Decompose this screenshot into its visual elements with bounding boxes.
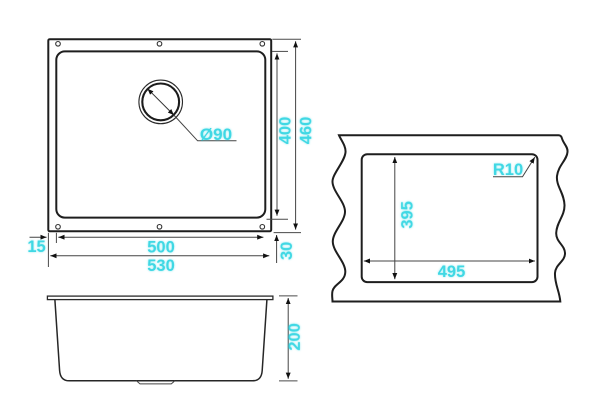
svg-text:495: 495 [438,263,466,281]
svg-text:500: 500 [147,238,175,256]
svg-text:Ø90: Ø90 [200,125,232,144]
svg-text:200: 200 [286,323,304,351]
svg-text:R10: R10 [493,161,523,179]
svg-text:460: 460 [297,117,315,145]
svg-text:530: 530 [147,257,175,275]
svg-text:395: 395 [399,201,417,229]
svg-text:400: 400 [277,117,295,145]
svg-text:30: 30 [278,242,296,260]
svg-text:15: 15 [27,238,45,256]
